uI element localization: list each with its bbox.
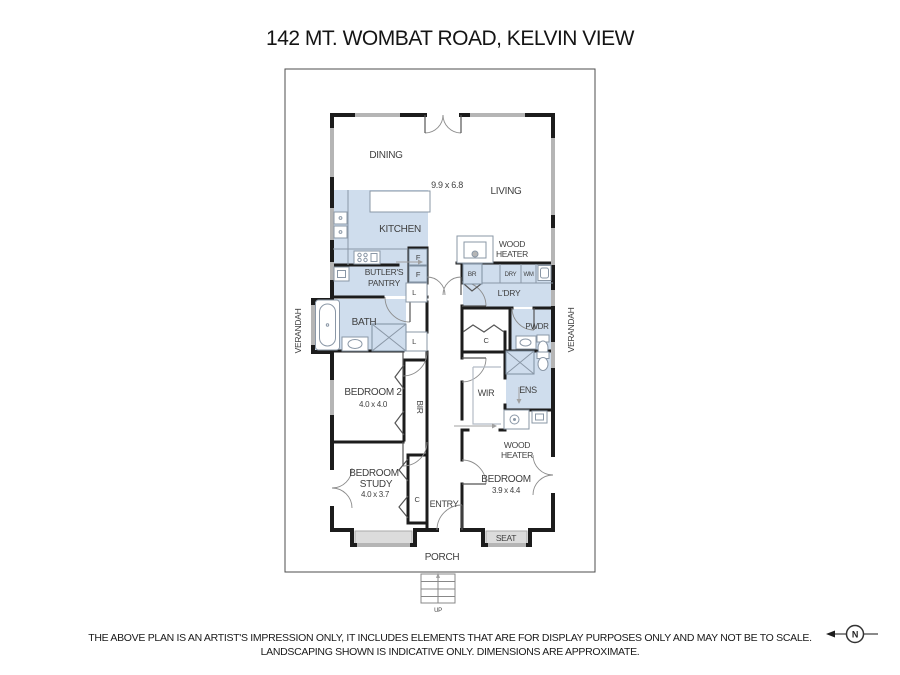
page-title: 142 MT. WOMBAT ROAD, KELVIN VIEW	[266, 27, 635, 50]
bedroom-label: BEDROOM	[481, 474, 531, 485]
living-label: LIVING	[491, 186, 523, 197]
seat-label: SEAT	[496, 533, 516, 543]
ensuite-label: ENS	[519, 385, 537, 395]
bedroom-dims-label: 3.9 x 4.4	[492, 486, 521, 495]
bathtub-icon	[316, 300, 340, 350]
linen-label-1: L	[412, 288, 416, 297]
powder-label: PWDR	[525, 322, 549, 331]
wir-label: WIR	[478, 388, 495, 398]
bath-label: BATH	[352, 317, 377, 328]
laundry-label: L'DRY	[498, 288, 521, 298]
closet-label-hall: C	[483, 336, 489, 345]
bedroom2-dims-label: 4.0 x 4.0	[359, 400, 388, 409]
porch-label: PORCH	[425, 552, 460, 563]
bir-label: BIR	[415, 400, 425, 413]
wood-heater-bedroom-icon	[504, 410, 529, 429]
butlers-pantry-label-2: PANTRY	[368, 278, 401, 288]
wood-heater-living-label-2: HEATER	[496, 249, 528, 259]
dryer-label: DRY	[505, 272, 517, 278]
kitchen-island	[370, 191, 430, 212]
wood-heater-bedroom-label-1: WOOD	[504, 440, 530, 450]
wood-heater-bedroom-label-2: HEATER	[501, 450, 533, 460]
kitchen-label: KITCHEN	[379, 224, 421, 235]
broom-label: BR	[468, 271, 477, 278]
bedroom2-label: BEDROOM 2	[344, 387, 402, 398]
pantry-unit-icon	[334, 267, 349, 281]
compass-arrow	[826, 631, 835, 638]
bath-vanity-icon	[342, 337, 368, 351]
bath-shower-icon	[372, 324, 406, 351]
fridge-label-1: F	[416, 253, 421, 262]
bedroom-study-dims-label: 4.0 x 3.7	[361, 490, 390, 499]
entry-label: ENTRY	[430, 499, 459, 509]
floor-plan-canvas: 142 MT. WOMBAT ROAD, KELVIN VIEW	[0, 0, 900, 675]
washer-label: WM	[523, 272, 533, 278]
verandah-label-right: VERANDAH	[566, 307, 576, 352]
verandah-label-left: VERANDAH	[293, 308, 303, 353]
ensuite-vanity-icon	[532, 411, 547, 423]
laundry-trough-icon	[538, 266, 551, 281]
entry-steps-icon	[421, 573, 455, 604]
wood-heater-living-icon	[457, 236, 493, 263]
ensuite-shower-icon	[506, 351, 534, 374]
closet-label-study: C	[414, 495, 420, 504]
bay-window-seat-left	[355, 531, 412, 544]
cooktop-icon	[354, 251, 380, 264]
butlers-pantry-label-1: BUTLER'S	[365, 267, 404, 277]
linen-box-1	[406, 283, 427, 302]
bedroom-study-label-1: BEDROOM	[349, 468, 399, 479]
powder-vanity-icon	[516, 336, 536, 349]
compass-north-label: N	[852, 630, 858, 640]
overall-dims-label: 9.9 x 6.8	[431, 180, 463, 190]
ensuite-toilet-icon	[537, 352, 549, 371]
disclaimer-line-2: LANDSCAPING SHOWN IS INDICATIVE ONLY. DI…	[261, 646, 640, 658]
compass: N	[826, 626, 878, 643]
floor-plan-page: 142 MT. WOMBAT ROAD, KELVIN VIEW	[0, 0, 900, 675]
linen-box-2	[406, 332, 427, 351]
room-fills	[315, 190, 552, 409]
wood-heater-living-label-1: WOOD	[499, 239, 525, 249]
linen-label-2: L	[412, 337, 416, 346]
disclaimer-line-1: THE ABOVE PLAN IS AN ARTIST'S IMPRESSION…	[88, 632, 811, 644]
fridge-label-2: F	[416, 270, 421, 279]
dining-label: DINING	[369, 150, 403, 161]
bedroom-study-label-2: STUDY	[360, 479, 393, 490]
up-label: UP	[434, 608, 442, 614]
